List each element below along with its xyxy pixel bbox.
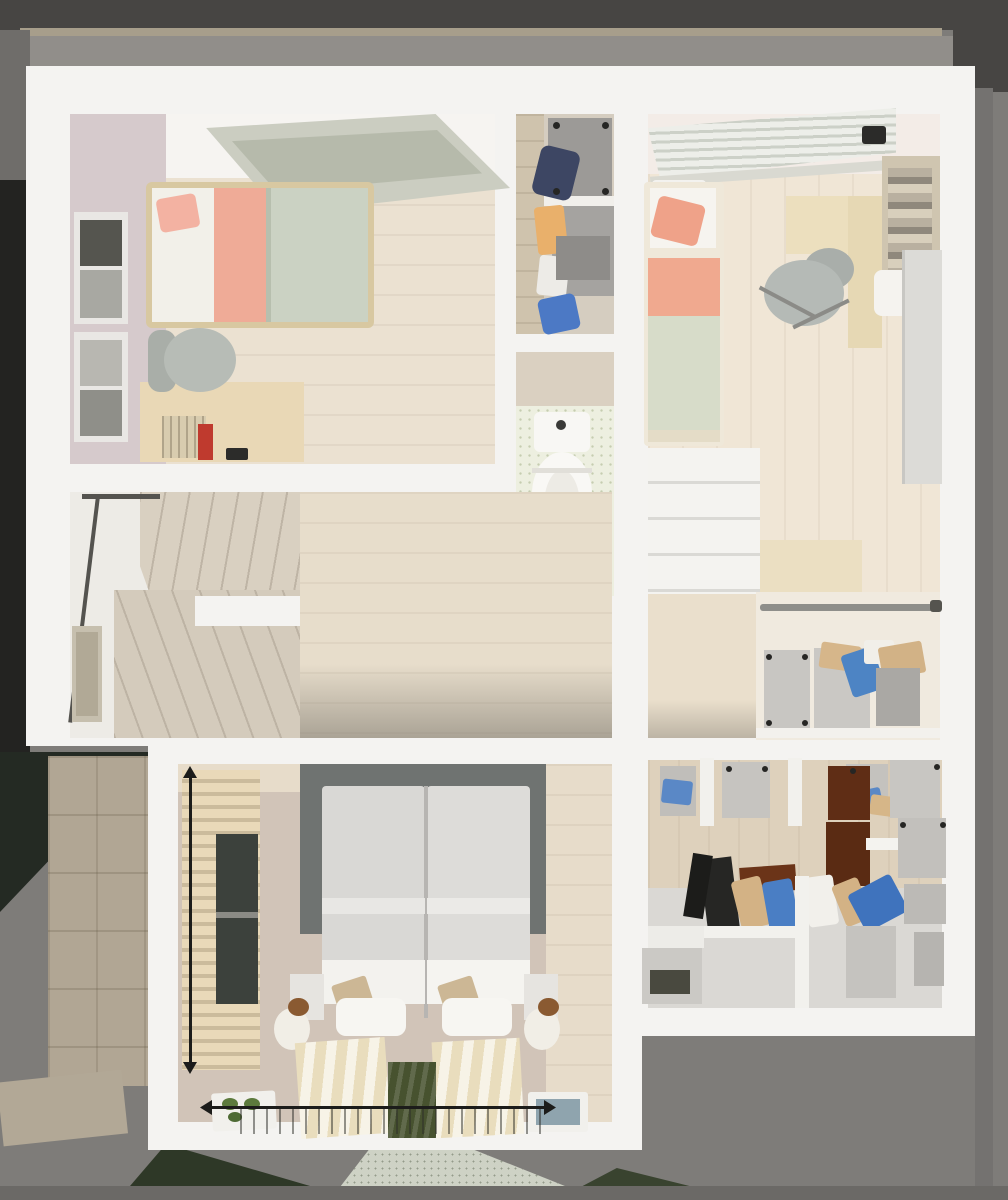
dog-right-head [538, 998, 559, 1016]
master-window-dark [216, 834, 258, 1004]
bed1-blanket-pink [214, 188, 270, 322]
toilet-flush-button [556, 420, 566, 430]
toilet-tank [534, 412, 590, 452]
desk1-red-book [198, 424, 213, 460]
closet-alcove-rod [760, 604, 938, 611]
storage-box-4 [890, 760, 940, 818]
chair1-seat [164, 328, 236, 392]
master-bed-right-fold [427, 898, 530, 914]
storage-dot-1 [726, 766, 732, 772]
master-dim-arrow-v [189, 772, 192, 1066]
storage-cubby-wall-h [700, 926, 796, 938]
storage-box-right-2 [904, 884, 946, 924]
bed1-pillow-pink [155, 193, 200, 233]
closet-box-small [556, 236, 610, 280]
storage-white-block [648, 926, 704, 948]
bedroom1-window-upper-pane-light [80, 270, 122, 318]
master-window-mullion [216, 912, 258, 918]
bed2-blanket-salmon [648, 258, 720, 316]
bedroom2-door-panel [902, 250, 942, 484]
stairs-window-inner [76, 632, 98, 716]
closet-alcove-box-1 [764, 650, 810, 728]
bed1-duvet-edge [266, 188, 271, 322]
closet-item-blue [537, 292, 582, 335]
closet-alcove-rod-end [930, 600, 942, 612]
floorplan-canvas [0, 0, 1008, 1200]
master-bed-right-duvet [427, 786, 530, 964]
bed2-footboard [648, 430, 720, 442]
storage-dot-4 [934, 764, 940, 770]
toilet-seat-line [532, 468, 592, 473]
closet-alcove-dot-3 [766, 720, 772, 726]
top-roof-band [0, 0, 1008, 30]
storage-box-right-3 [846, 926, 896, 998]
closet-clip-dot-3 [553, 188, 560, 195]
closet-clip-dot-1 [553, 122, 560, 129]
desk1-phone [226, 448, 248, 460]
closet-alcove-shelf-floor [756, 728, 940, 738]
closet-alcove-dot-4 [802, 720, 808, 726]
hall-floor-shadow [300, 664, 612, 738]
dresser2 [648, 448, 760, 594]
storage-wallstub-1 [700, 758, 714, 826]
storage-brown-top [828, 766, 870, 820]
bedroom1-window-lower-pane-bottom [80, 390, 122, 436]
bedroom1-window-lower-pane-top [80, 340, 122, 386]
cabinet2 [760, 540, 862, 594]
bottom-facade-bar [0, 1186, 1008, 1200]
master-floor-wood-right [546, 764, 612, 1122]
storage-box-right-4 [914, 932, 944, 986]
master-pillow-left [336, 998, 406, 1036]
master-bed-left-duvet [322, 786, 425, 964]
master-bed-left-fold [322, 898, 425, 914]
storage-dot-6 [940, 822, 946, 828]
master-pillow-right [442, 998, 512, 1036]
master-rail-hatch [240, 1106, 546, 1134]
storage-wallstub-2 [788, 758, 802, 826]
toilet-upper-band [516, 352, 614, 408]
dog-left-head [288, 998, 309, 1016]
shelf2-camera [862, 126, 886, 144]
closet-alcove-box-3 [876, 668, 920, 726]
closet-alcove-dot-1 [766, 654, 772, 660]
storage-counter-tray [650, 970, 690, 994]
storage-dot-2 [762, 766, 768, 772]
closet-clip-dot-2 [602, 122, 609, 129]
closet-alcove-dot-2 [802, 654, 808, 660]
bed1-duvet [268, 188, 368, 322]
bed2-duvet [648, 316, 720, 434]
storage-item-blue-1 [661, 778, 693, 805]
storage-dot-5 [900, 822, 906, 828]
bedroom1-window-upper-pane-dark [80, 220, 122, 266]
stairs-handrail-top [82, 494, 160, 499]
right-facade-edge [975, 88, 993, 1188]
corridor-shadow [648, 700, 758, 738]
exterior-wall-beige [48, 756, 150, 1086]
storage-dot-3 [850, 768, 856, 774]
top-facade-gray-band [20, 36, 955, 70]
closet-clip-dot-4 [602, 188, 609, 195]
master-dim-arrow-h [206, 1106, 550, 1109]
storage-cubby-wall-v [795, 876, 809, 1008]
exterior-slab [0, 1070, 128, 1147]
